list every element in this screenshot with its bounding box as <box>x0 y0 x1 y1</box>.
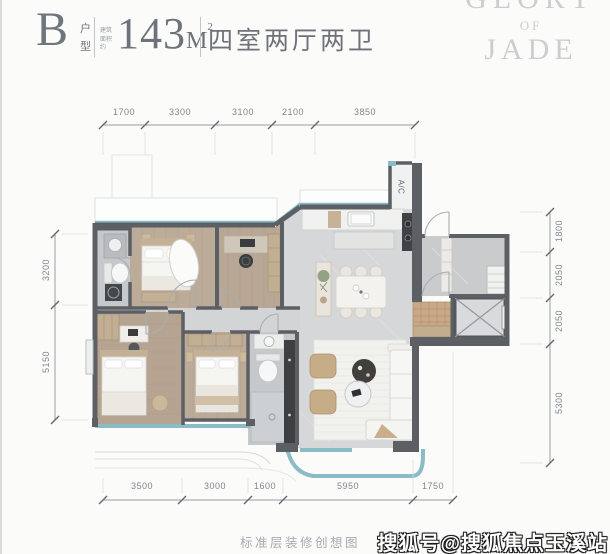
brand-line-1: GLORY <box>465 0 597 14</box>
dim-bottom-2: 3000 <box>204 481 226 491</box>
ac-platform-outline <box>112 155 152 199</box>
floor-plan-page: B 户型 建筑面积约 143M2 四室两厅两卫 GLORY OF JADE 17… <box>0 0 610 554</box>
brand-watermark: GLORY OF JADE <box>465 0 597 65</box>
throw-blanket <box>196 396 238 405</box>
living-room <box>310 340 414 440</box>
headboard <box>194 350 240 357</box>
dim-bottom-5: 1750 <box>422 481 444 491</box>
area-figure: 143M2 <box>117 8 213 59</box>
plant <box>318 270 330 282</box>
headboard <box>100 350 148 357</box>
bookcase <box>268 234 280 292</box>
shower-panel <box>284 340 295 444</box>
coffee-table <box>352 359 376 383</box>
dim-top-4: 2100 <box>282 107 304 117</box>
header-divider <box>200 17 201 57</box>
island <box>334 232 394 249</box>
dim-top-2: 3300 <box>169 107 191 117</box>
wardrobe <box>188 334 242 346</box>
dim-bottom-4: 5950 <box>337 481 359 491</box>
dim-right-3: 2050 <box>554 310 564 332</box>
shoe-cabinet <box>413 326 452 337</box>
area-prefix: 建筑面积约 <box>100 27 114 53</box>
toilet <box>259 360 278 382</box>
floor-plan-svg <box>0 0 610 554</box>
dim-left-1: 3200 <box>41 259 51 281</box>
hall-cabinet <box>441 238 452 292</box>
rooms-label: 四室两厅两卫 <box>208 21 376 57</box>
dim-bottom-3: 1600 <box>254 481 276 491</box>
dim-right-1: 1800 <box>554 220 564 242</box>
area-unit: M <box>186 28 207 54</box>
dining-area <box>316 262 386 318</box>
elevator <box>455 298 507 337</box>
dim-left-2: 5150 <box>41 351 51 373</box>
foot-bench <box>142 292 176 302</box>
armchair <box>310 390 336 414</box>
plan-caption: 标准层装修创想图 <box>240 532 360 551</box>
dim-top-3: 3100 <box>232 107 254 117</box>
dim-top-5: 3850 <box>354 107 376 117</box>
armchair <box>310 354 336 378</box>
brand-line-2: OF <box>465 18 597 34</box>
ac-closet-label: A/C <box>397 180 406 195</box>
dim-right-4: 5300 <box>554 392 564 414</box>
unit-type-label: 户型 <box>80 21 93 56</box>
entry-mat <box>413 302 452 337</box>
sink <box>109 239 122 252</box>
unit-letter: B <box>36 4 68 57</box>
sofa <box>390 350 414 424</box>
sink <box>264 337 274 347</box>
dim-top-1: 1700 <box>113 107 135 117</box>
dim-right-2: 2050 <box>554 264 564 286</box>
wardrobe <box>97 314 119 340</box>
area-value: 143 <box>117 9 186 58</box>
sohu-watermark: 搜狐号@搜狐焦点玉溪站 <box>377 527 608 554</box>
dim-bottom-1: 3500 <box>131 481 153 491</box>
pouf <box>152 395 168 411</box>
brand-line-3: JADE <box>465 35 597 65</box>
desk-chair <box>239 254 253 268</box>
foyer-closet <box>487 266 505 294</box>
header-divider <box>94 17 95 57</box>
toilet <box>112 263 129 283</box>
